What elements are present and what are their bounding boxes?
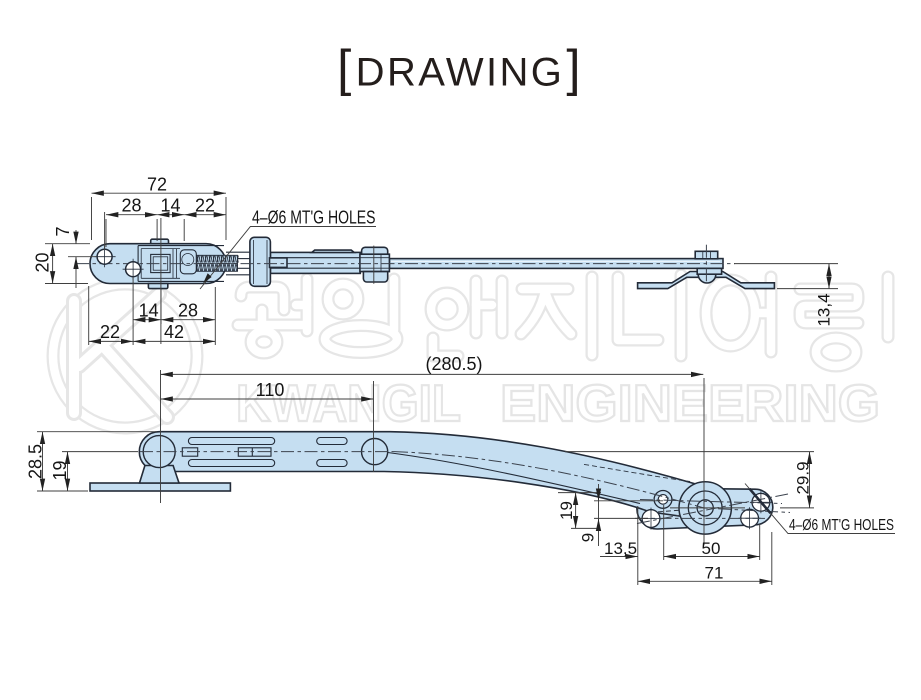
svg-text:110: 110	[256, 380, 285, 400]
svg-text:42: 42	[164, 322, 184, 342]
svg-text:28.5: 28.5	[26, 444, 46, 479]
svg-text:28: 28	[121, 196, 141, 216]
svg-text:22: 22	[195, 196, 215, 216]
svg-text:14: 14	[139, 301, 159, 321]
svg-text:19: 19	[50, 460, 70, 480]
svg-text:4–Ø6 MT'G HOLES: 4–Ø6 MT'G HOLES	[252, 208, 376, 228]
svg-text:13,5: 13,5	[604, 539, 637, 558]
svg-text:22: 22	[100, 322, 120, 342]
svg-text:7: 7	[53, 226, 73, 236]
svg-text:19: 19	[557, 501, 576, 520]
svg-text:29.9: 29.9	[794, 461, 813, 494]
svg-text:50: 50	[702, 539, 721, 558]
svg-text:20: 20	[33, 252, 53, 272]
svg-text:9: 9	[579, 533, 598, 542]
svg-text:4–Ø6 MT'G HOLES: 4–Ø6 MT'G HOLES	[789, 517, 894, 534]
svg-text:13,4: 13,4	[815, 293, 834, 326]
svg-text:14: 14	[160, 196, 180, 216]
svg-text:28: 28	[178, 301, 198, 321]
svg-text:71: 71	[705, 564, 724, 583]
svg-text:72: 72	[147, 175, 167, 195]
svg-text:(280.5): (280.5)	[425, 354, 482, 374]
svg-text:ENGINEERING: ENGINEERING	[500, 375, 880, 433]
